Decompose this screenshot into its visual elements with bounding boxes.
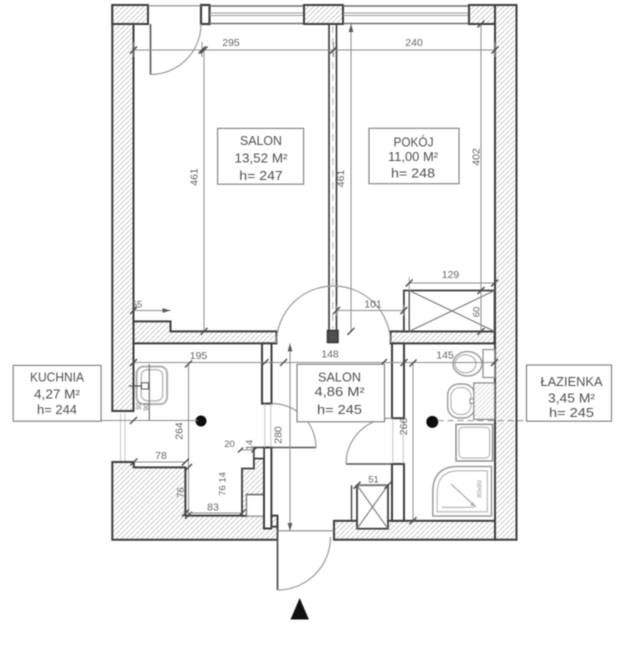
svg-text:280: 280: [273, 426, 285, 444]
svg-text:POKÓJ: POKÓJ: [394, 135, 434, 150]
svg-text:145: 145: [436, 350, 454, 362]
svg-text:80x80: 80x80: [477, 480, 484, 498]
svg-text:129: 129: [442, 269, 460, 281]
svg-text:402: 402: [471, 148, 483, 166]
svg-text:SALON: SALON: [240, 133, 282, 148]
svg-text:20: 20: [224, 439, 235, 450]
svg-text:4,27 M²: 4,27 M²: [34, 387, 81, 402]
svg-text:ŁAZIENKA: ŁAZIENKA: [541, 374, 603, 389]
svg-text:264: 264: [174, 422, 186, 440]
svg-text:13,52 M²: 13,52 M²: [235, 151, 289, 166]
svg-text:11,00 M²: 11,00 M²: [388, 149, 439, 164]
svg-text:14: 14: [245, 440, 256, 451]
svg-text:461: 461: [189, 168, 201, 186]
svg-text:h= 245: h= 245: [549, 405, 594, 420]
svg-text:101: 101: [364, 299, 382, 311]
svg-text:461: 461: [335, 170, 347, 188]
svg-text:h= 244: h= 244: [37, 402, 77, 417]
svg-text:240: 240: [405, 37, 423, 49]
svg-text:SALON: SALON: [318, 370, 361, 385]
svg-text:295: 295: [222, 37, 240, 49]
svg-text:h= 247: h= 247: [239, 168, 283, 183]
svg-text:KUCHNIA: KUCHNIA: [30, 370, 84, 385]
svg-text:55: 55: [132, 300, 143, 311]
svg-text:266: 266: [398, 418, 410, 436]
svg-text:90: 90: [144, 403, 151, 411]
svg-text:195: 195: [190, 350, 208, 362]
svg-text:51: 51: [368, 475, 379, 486]
svg-text:78: 78: [155, 450, 167, 462]
svg-text:76: 76: [176, 487, 187, 498]
svg-text:76 14: 76 14: [218, 472, 229, 496]
svg-text:83: 83: [207, 502, 219, 514]
svg-text:90: 90: [136, 402, 143, 410]
svg-text:3,45 M²: 3,45 M²: [548, 391, 596, 406]
svg-text:h= 248: h= 248: [391, 166, 435, 181]
svg-text:4,86 M²: 4,86 M²: [315, 384, 366, 399]
svg-text:60: 60: [472, 307, 483, 318]
svg-text:h= 245: h= 245: [317, 402, 362, 417]
svg-text:148: 148: [321, 349, 339, 361]
